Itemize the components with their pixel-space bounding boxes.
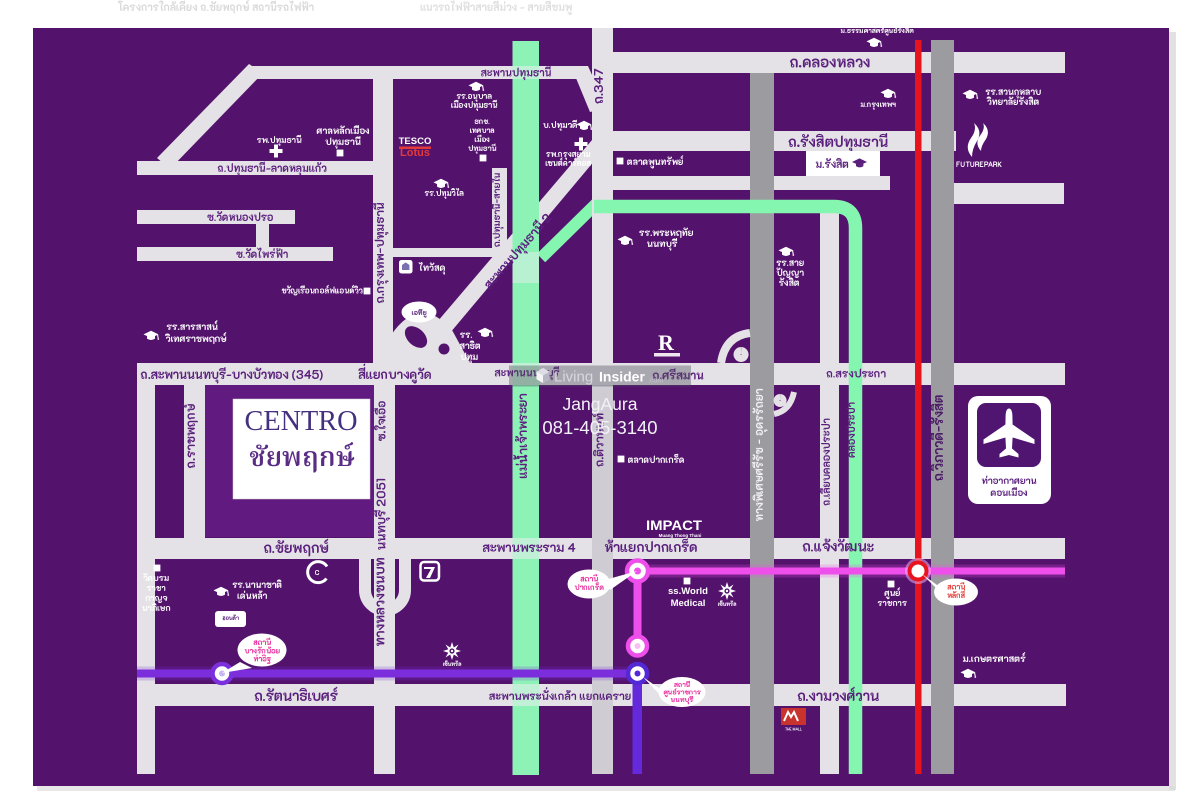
svg-text:ถ.แจ้งวัฒนะ: ถ.แจ้งวัฒนะ	[802, 537, 875, 556]
svg-text:.com: .com	[648, 378, 663, 385]
svg-text:ถ.สะพานนนทบุรี-บางบัวทอง (345): ถ.สะพานนนทบุรี-บางบัวทอง (345)	[141, 365, 324, 384]
svg-text:ถ.เลียบคลองประปา: ถ.เลียบคลองประปา	[819, 418, 833, 506]
svg-text:ถ.ราชพฤกษ์: ถ.ราชพฤกษ์	[182, 404, 199, 469]
svg-text:TESCO: TESCO	[399, 136, 432, 147]
svg-text:ขวัญเรือนกอล์ฟแอนด์วิว: ขวัญเรือนกอล์ฟแอนด์วิว	[281, 285, 363, 297]
svg-text:สาธิต: สาธิต	[459, 341, 480, 352]
svg-text:ซ.วัดหนองปรอ: ซ.วัดหนองปรอ	[207, 210, 274, 224]
svg-text:เซ็นทรัล: เซ็นทรัล	[443, 661, 462, 668]
svg-text:ถ.347: ถ.347	[590, 68, 607, 104]
svg-text:รพ.ปทุมธานี: รพ.ปทุมธานี	[257, 134, 302, 146]
svg-text:ตลาดพูนทรัพย์: ตลาดพูนทรัพย์	[627, 156, 683, 168]
svg-text:ปทุมธานี: ปทุมธานี	[325, 135, 362, 150]
svg-text:แม่น้ำเจ้าพระยา: แม่น้ำเจ้าพระยา	[513, 393, 531, 479]
svg-text:ม.เกษตรศาสตร์: ม.เกษตรศาสตร์	[962, 651, 1026, 665]
svg-text:คลองประปา: คลองประปา	[844, 401, 858, 457]
svg-text:นาภิเษก: นาภิเษก	[142, 603, 170, 614]
svg-text:ถ.สรงประกา: ถ.สรงประกา	[826, 366, 887, 381]
svg-text:ถ.งามวงศ์วาน: ถ.งามวงศ์วาน	[797, 686, 879, 705]
svg-text:ชัยพฤกษ์: ชัยพฤกษ์	[249, 438, 354, 481]
svg-text:ฮอนด้า: ฮอนด้า	[222, 615, 239, 622]
svg-text:ทางพิเศษศรีรัช - อุดรรัถยา: ทางพิเศษศรีรัช - อุดรรัถยา	[751, 387, 768, 521]
svg-text:ถ.ปทุมธานี-สายใน: ถ.ปทุมธานี-สายใน	[490, 172, 505, 248]
svg-text:IMPACT: IMPACT	[646, 518, 703, 533]
svg-text:ถ.วิภาวดี-รังสิต: ถ.วิภาวดี-รังสิต	[929, 394, 947, 481]
svg-text:ss.World: ss.World	[668, 586, 708, 597]
svg-text:ปทุม: ปทุม	[460, 352, 478, 363]
svg-text:สะพานพระนั่งเกล้า แยกแคราย: สะพานพระนั่งเกล้า แยกแคราย	[489, 685, 632, 703]
svg-text:ตลาดปากเกร็ด: ตลาดปากเกร็ด	[628, 454, 685, 466]
svg-text:โครงการใกล้เคียง ถ.ชัยพฤกษ์: โครงการใกล้เคียง ถ.ชัยพฤกษ์ สถานีรถไฟฟ้า	[117, 0, 315, 14]
svg-text:ปทุมธานี: ปทุมธานี	[468, 142, 496, 154]
svg-text:ท่าอิฐ: ท่าอิฐ	[253, 654, 271, 665]
svg-text:ห้าแยกปากเกร็ด: ห้าแยกปากเกร็ด	[604, 538, 697, 556]
svg-text:รร.สารสาสน์: รร.สารสาสน์	[166, 319, 218, 333]
svg-text:แนวรถไฟฟ้าสายสีม่วง - สายสีชมพ: แนวรถไฟฟ้าสายสีม่วง - สายสีชมพู	[420, 0, 573, 15]
svg-text:รร.นานาชาติ: รร.นานาชาติ	[232, 580, 282, 591]
svg-text:นนทบุรี: นนทบุรี	[671, 695, 695, 705]
svg-text:ปากเกร็ด: ปากเกร็ด	[574, 581, 604, 592]
svg-text:บ.ปทุมวดี: บ.ปทุมวดี	[543, 119, 578, 131]
svg-text:ถ.คลองหลวง: ถ.คลองหลวง	[789, 52, 870, 72]
svg-text:ท่าอากาศยาน: ท่าอากาศยาน	[981, 475, 1037, 487]
svg-text:Living: Living	[554, 369, 593, 386]
svg-text:รร.: รร.	[460, 330, 473, 341]
svg-text:ถ.รังสิตปทุมธานี: ถ.รังสิตปทุมธานี	[788, 132, 889, 153]
svg-text:เด่นหล้า: เด่นหล้า	[237, 591, 267, 602]
svg-text:ม.ธรรมศาสตร์ศูนย์รังสิต: ม.ธรรมศาสตร์ศูนย์รังสิต	[840, 25, 913, 36]
svg-text:สะพานปทุมธานี: สะพานปทุมธานี	[481, 66, 552, 82]
svg-text:ถ.กรุงเทพ-ปทุมธานี: ถ.กรุงเทพ-ปทุมธานี	[372, 202, 389, 304]
svg-text:ราชการ: ราชการ	[877, 598, 907, 609]
svg-text:ไทวัสดุ: ไทวัสดุ	[419, 261, 446, 276]
svg-text:นนทบุรี: นนทบุรี	[647, 237, 678, 252]
svg-text:081-405-3140: 081-405-3140	[542, 417, 657, 438]
svg-text:C: C	[315, 568, 320, 577]
svg-text:รังสิต: รังสิต	[779, 278, 800, 289]
svg-text:ศาลหลักเมือง: ศาลหลักเมือง	[316, 123, 370, 137]
svg-text:ดอนเมือง: ดอนเมือง	[990, 485, 1027, 499]
svg-text:นนทบุรี 2051: นนทบุรี 2051	[373, 478, 391, 550]
svg-text:ม.รังสิต: ม.รังสิต	[815, 157, 849, 171]
svg-text:รร.ปทุมวิไล: รร.ปทุมวิไล	[424, 188, 464, 199]
svg-text:THE MALL: THE MALL	[785, 727, 803, 732]
svg-text:เอทียู: เอทียู	[411, 308, 426, 318]
svg-text:ซ.วัดไพร่ฟ้า: ซ.วัดไพร่ฟ้า	[236, 247, 289, 261]
svg-text:วิเทศราชพฤกษ์: วิเทศราชพฤกษ์	[166, 331, 227, 345]
svg-text:ถ.รัตนาธิเบศร์: ถ.รัตนาธิเบศร์	[254, 686, 339, 705]
svg-text:JangAura: JangAura	[563, 394, 638, 414]
svg-text:R: R	[658, 330, 675, 355]
svg-text:Lotus: Lotus	[400, 147, 430, 159]
svg-text:Muang Thong Thani: Muang Thong Thani	[659, 533, 702, 538]
svg-text:ม.กรุงเทพฯ: ม.กรุงเทพฯ	[860, 99, 896, 110]
svg-text:เซ็นทรัล: เซ็นทรัล	[718, 601, 737, 608]
svg-text:สะพานพระราม 4: สะพานพระราม 4	[482, 540, 575, 556]
svg-text:เซนต์คาร์ลอส: เซนต์คาร์ลอส	[545, 157, 591, 169]
svg-text:ถ.ปทุมธานี-ลาดหลุมแก้ว: ถ.ปทุมธานี-ลาดหลุมแก้ว	[217, 161, 327, 177]
svg-text:เมืองปทุมธานี: เมืองปทุมธานี	[451, 99, 498, 111]
svg-text:FUTUREPARK: FUTUREPARK	[956, 160, 1002, 170]
svg-text:Insider: Insider	[599, 369, 645, 385]
svg-text:ทางหลวงชนบท: ทางหลวงชนบท	[372, 558, 389, 647]
svg-text:วิทยาลัยรังสิต: วิทยาลัยรังสิต	[987, 97, 1040, 108]
svg-text:Medical: Medical	[671, 598, 706, 609]
svg-text:หลักสี่: หลักสี่	[947, 588, 966, 600]
svg-text:CENTRO: CENTRO	[245, 405, 358, 437]
svg-text:ถ.ชัยพฤกษ์: ถ.ชัยพฤกษ์	[263, 538, 328, 557]
